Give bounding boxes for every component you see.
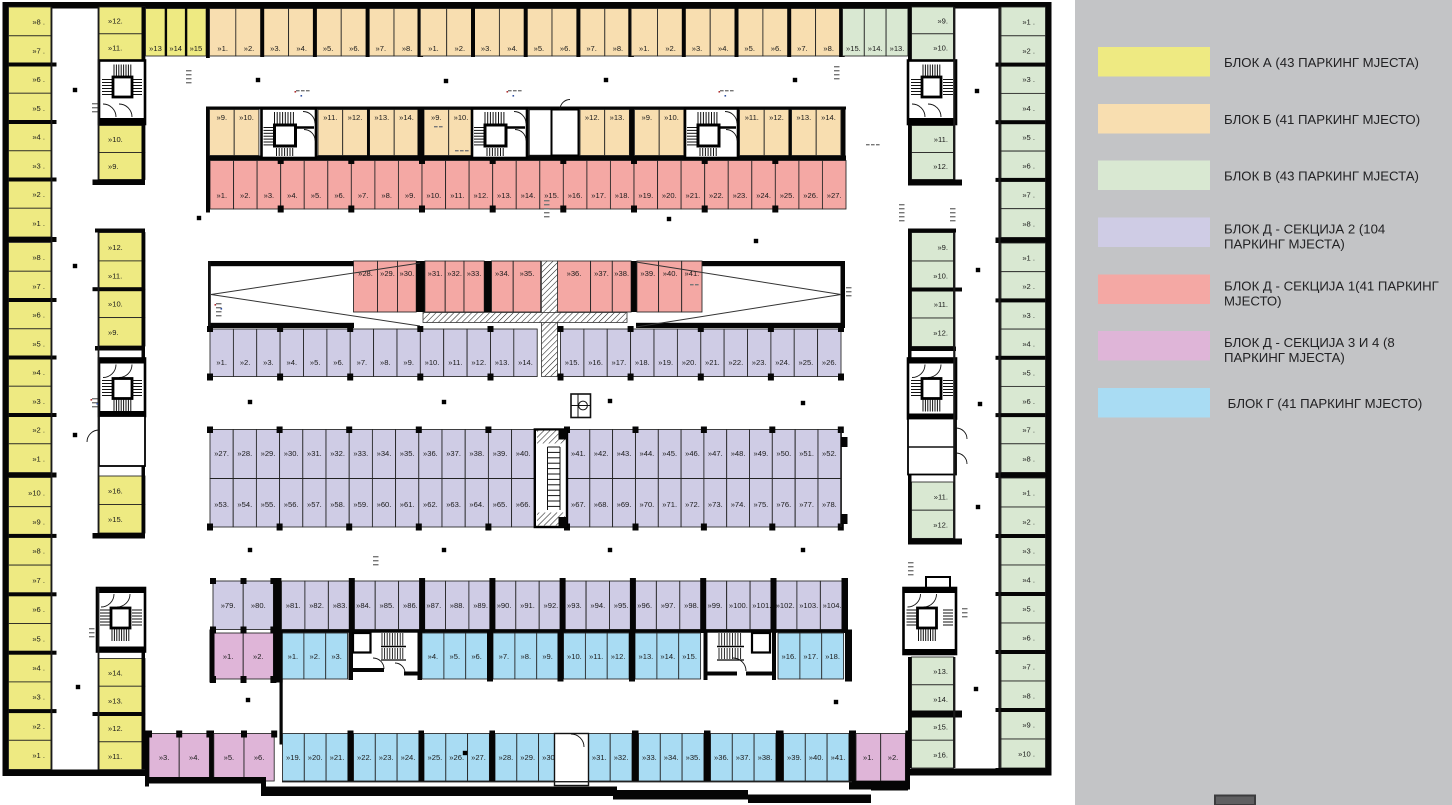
svg-text:»21.: »21. (330, 753, 345, 762)
svg-text:»34.: »34. (377, 449, 392, 458)
svg-text:»15: »15 (190, 44, 203, 53)
svg-text:»6 .: »6 . (32, 75, 45, 84)
svg-text:»43.: »43. (617, 449, 632, 458)
svg-text:»10.: »10. (933, 43, 948, 52)
svg-text:»19.: »19. (638, 191, 653, 200)
svg-text:»11.: »11. (589, 652, 603, 661)
svg-text:»75.: »75. (754, 500, 769, 509)
svg-text:»102.: »102. (776, 601, 795, 610)
svg-text:»13.: »13. (933, 667, 948, 676)
svg-text:»1.: »1. (288, 652, 299, 661)
svg-text:»6 .: »6 . (1022, 634, 1035, 643)
svg-text:»7 .: »7 . (32, 282, 45, 291)
svg-text:БЛОК Д - СЕКЦИЈА 2 (104: БЛОК Д - СЕКЦИЈА 2 (104 (1224, 222, 1385, 237)
svg-text:»3.: »3. (481, 44, 492, 53)
svg-text:»37.: »37. (446, 449, 461, 458)
svg-text:»2.: »2. (240, 358, 251, 367)
svg-text:»17.: »17. (591, 191, 606, 200)
svg-text:»8.: »8. (521, 652, 532, 661)
svg-text:»2 .: »2 . (1022, 282, 1035, 291)
svg-text:БЛОК В (43 ПАРКИНГ МЈЕСТА): БЛОК В (43 ПАРКИНГ МЈЕСТА) (1224, 169, 1419, 184)
svg-text:»5.: »5. (323, 44, 334, 53)
svg-text:»104.: »104. (823, 601, 842, 610)
svg-text:»10 .: »10 . (28, 488, 45, 497)
svg-text:»5 .: »5 . (32, 104, 45, 113)
svg-text:»64.: »64. (469, 500, 484, 509)
svg-text:»6.: »6. (771, 44, 782, 53)
svg-text:»1 .: »1 . (32, 219, 45, 228)
svg-text:»31.: »31. (307, 449, 322, 458)
svg-text:»13.: »13. (796, 113, 811, 122)
svg-text:»2.: »2. (455, 44, 466, 53)
svg-text:»11.: »11. (934, 492, 948, 501)
svg-text:»8.: »8. (613, 44, 624, 53)
svg-text:»15.: »15. (933, 723, 948, 732)
svg-text:»16.: »16. (588, 358, 603, 367)
svg-text:»8 .: »8 . (1022, 454, 1035, 463)
svg-text:»39.: »39. (787, 753, 802, 762)
svg-text:»14.: »14. (518, 358, 533, 367)
svg-text:»3.: »3. (270, 44, 281, 53)
svg-text:»74.: »74. (731, 500, 746, 509)
svg-text:»8 .: »8 . (1022, 219, 1035, 228)
svg-text:»9.: »9. (937, 17, 948, 26)
svg-text:»76.: »76. (776, 500, 791, 509)
svg-text:»92.: »92. (544, 601, 559, 610)
svg-text:»3.: »3. (263, 358, 274, 367)
svg-text:»40.: »40. (663, 269, 678, 278)
svg-text:»14.: »14. (868, 44, 883, 53)
svg-text:»4.: »4. (428, 652, 439, 661)
svg-text:»4 .: »4 . (1022, 340, 1035, 349)
svg-text:»99.: »99. (708, 601, 723, 610)
svg-text:»5.: »5. (310, 358, 321, 367)
svg-text:»16.: »16. (782, 652, 797, 661)
svg-text:»4.: »4. (287, 358, 298, 367)
svg-text:»5 .: »5 . (1022, 605, 1035, 614)
svg-text:»13.: »13. (374, 113, 389, 122)
svg-text:»7 .: »7 . (32, 46, 45, 55)
svg-text:»27.: »27. (471, 753, 486, 762)
svg-text:»1.: »1. (217, 191, 228, 200)
svg-text:»70.: »70. (640, 500, 655, 509)
svg-text:»18.: »18. (635, 358, 650, 367)
svg-text:»97.: »97. (661, 601, 676, 610)
svg-text:»2 .: »2 . (32, 426, 45, 435)
svg-text:»36.: »36. (714, 753, 729, 762)
svg-text:»4 .: »4 . (1022, 104, 1035, 113)
svg-text:»36.: »36. (567, 269, 582, 278)
svg-text:»98.: »98. (684, 601, 699, 610)
svg-text:»16.: »16. (568, 191, 583, 200)
svg-text:»11.: »11. (108, 43, 122, 52)
svg-text:»4.: »4. (287, 191, 298, 200)
svg-text:»10.: »10. (108, 135, 123, 144)
svg-text:»91.: »91. (520, 601, 535, 610)
svg-text:»33.: »33. (353, 449, 368, 458)
svg-text:»32.: »32. (330, 449, 345, 458)
svg-text:»12.: »12. (933, 328, 948, 337)
svg-text:»18.: »18. (825, 652, 840, 661)
svg-text:»63.: »63. (446, 500, 461, 509)
svg-text:»14: »14 (169, 44, 182, 53)
svg-text:»67.: »67. (571, 500, 586, 509)
svg-text:»1.: »1. (223, 652, 234, 661)
svg-text:»3.: »3. (692, 44, 703, 53)
svg-text:»7.: »7. (797, 44, 808, 53)
svg-text:»9.: »9. (542, 652, 553, 661)
svg-text:»47.: »47. (708, 449, 723, 458)
svg-text:»3.: »3. (264, 191, 275, 200)
svg-text:»87.: »87. (426, 601, 441, 610)
svg-text:»24.: »24. (401, 753, 416, 762)
svg-text:»2 .: »2 . (32, 190, 45, 199)
svg-text:»1 .: »1 . (32, 454, 45, 463)
svg-text:»38.: »38. (758, 753, 773, 762)
svg-text:»2.: »2. (888, 753, 899, 762)
svg-text:»8 .: »8 . (32, 547, 45, 556)
svg-text:»9.: »9. (642, 113, 653, 122)
svg-text:»1 .: »1 . (1022, 489, 1035, 498)
svg-text:»50.: »50. (776, 449, 791, 458)
svg-text:»1.: »1. (216, 358, 227, 367)
svg-text:»10.: »10. (933, 271, 948, 280)
svg-text:»14.: »14. (933, 695, 948, 704)
svg-text:»58.: »58. (330, 500, 345, 509)
svg-text:»72.: »72. (685, 500, 700, 509)
svg-text:»10.: »10. (664, 113, 679, 122)
svg-text:»1.: »1. (428, 44, 439, 53)
svg-text:»4.: »4. (718, 44, 729, 53)
svg-text:»40.: »40. (809, 753, 824, 762)
svg-text:»101.: »101. (752, 601, 771, 610)
svg-text:»42.: »42. (594, 449, 609, 458)
svg-text:»14.: »14. (521, 191, 536, 200)
svg-text:»12.: »12. (769, 113, 784, 122)
svg-text:»23.: »23. (733, 191, 748, 200)
svg-text:»78.: »78. (822, 500, 837, 509)
svg-text:»60.: »60. (377, 500, 392, 509)
svg-text:»51.: »51. (799, 449, 814, 458)
svg-text:»5 .: »5 . (1022, 368, 1035, 377)
svg-text:»12.: »12. (585, 113, 600, 122)
svg-text:»10.: »10. (454, 113, 469, 122)
svg-text:»10.: »10. (426, 191, 441, 200)
svg-text:»19.: »19. (658, 358, 673, 367)
svg-text:»1 .: »1 . (32, 751, 45, 760)
svg-text:»11.: »11. (450, 191, 464, 200)
svg-text:»11.: »11. (934, 300, 948, 309)
svg-text:»11.: »11. (108, 752, 122, 761)
svg-text:»11.: »11. (934, 135, 948, 144)
svg-text:»11.: »11. (108, 271, 122, 280)
svg-text:»7.: »7. (376, 44, 387, 53)
svg-text:»3 .: »3 . (32, 693, 45, 702)
svg-text:»28.: »28. (237, 449, 252, 458)
svg-text:»3 .: »3 . (32, 161, 45, 170)
svg-text:»39.: »39. (493, 449, 508, 458)
svg-text:»85.: »85. (380, 601, 395, 610)
svg-text:»56.: »56. (284, 500, 299, 509)
svg-text:»3 .: »3 . (1022, 547, 1035, 556)
svg-text:»5.: »5. (744, 44, 755, 53)
svg-text:»12.: »12. (611, 652, 626, 661)
svg-text:»13.: »13. (639, 652, 654, 661)
svg-text:»13: »13 (149, 44, 162, 53)
svg-text:»8.: »8. (381, 191, 392, 200)
svg-text:»40.: »40. (516, 449, 531, 458)
svg-text:»12.: »12. (933, 521, 948, 530)
svg-text:»38.: »38. (469, 449, 484, 458)
svg-text:»29.: »29. (380, 269, 395, 278)
svg-text:»9.: »9. (937, 243, 948, 252)
svg-text:»38.: »38. (614, 269, 629, 278)
svg-text:»12.: »12. (108, 243, 123, 252)
svg-text:»86.: »86. (403, 601, 418, 610)
svg-text:»88.: »88. (450, 601, 465, 610)
svg-text:»9.: »9. (405, 191, 416, 200)
svg-text:»84.: »84. (356, 601, 371, 610)
svg-text:»22.: »22. (709, 191, 724, 200)
svg-text:»8.: »8. (402, 44, 413, 53)
svg-text:»95.: »95. (614, 601, 629, 610)
svg-text:»10.: »10. (108, 300, 123, 309)
svg-text:»14.: »14. (821, 113, 836, 122)
svg-text:»77.: »77. (799, 500, 814, 509)
svg-text:»2.: »2. (665, 44, 676, 53)
svg-text:»80.: »80. (251, 601, 266, 610)
svg-text:»35.: »35. (400, 449, 415, 458)
svg-text:»11.: »11. (448, 358, 462, 367)
svg-text:»41.: »41. (831, 753, 846, 762)
svg-text:»35.: »35. (520, 269, 535, 278)
svg-text:»13.: »13. (610, 113, 625, 122)
svg-text:»30.: »30. (400, 269, 415, 278)
svg-text:»52.: »52. (822, 449, 837, 458)
svg-text:»37.: »37. (594, 269, 609, 278)
svg-text:»25.: »25. (780, 191, 795, 200)
svg-text:»34.: »34. (664, 753, 679, 762)
svg-text:»10.: »10. (425, 358, 440, 367)
svg-text:»26.: »26. (822, 358, 837, 367)
svg-text:»54.: »54. (237, 500, 252, 509)
svg-text:»1.: »1. (639, 44, 650, 53)
svg-text:»6 .: »6 . (32, 311, 45, 320)
svg-text:»15.: »15. (565, 358, 580, 367)
svg-text:»62.: »62. (423, 500, 438, 509)
svg-text:»21.: »21. (705, 358, 720, 367)
svg-text:»3 .: »3 . (32, 397, 45, 406)
svg-text:»7.: »7. (357, 358, 368, 367)
svg-text:»6.: »6. (560, 44, 571, 53)
svg-text:»19.: »19. (286, 753, 301, 762)
svg-text:»68.: »68. (594, 500, 609, 509)
svg-text:ПАРКИНГ МЈЕСТА): ПАРКИНГ МЈЕСТА) (1224, 237, 1345, 252)
svg-text:»83.: »83. (333, 601, 348, 610)
svg-text:»11.: »11. (323, 113, 337, 122)
svg-text:»32.: »32. (447, 269, 462, 278)
svg-text:»69.: »69. (617, 500, 632, 509)
svg-text:»14.: »14. (399, 113, 414, 122)
svg-text:»17.: »17. (803, 652, 818, 661)
svg-text:»24.: »24. (775, 358, 790, 367)
svg-text:»1 .: »1 . (1022, 254, 1035, 263)
svg-text:»73.: »73. (708, 500, 723, 509)
svg-text:»4 .: »4 . (32, 133, 45, 142)
svg-text:»1.: »1. (863, 753, 874, 762)
svg-text:»4.: »4. (296, 44, 307, 53)
svg-text:»34.: »34. (495, 269, 510, 278)
svg-text:БЛОК Д - СЕКЦИЈА 3 И 4 (8: БЛОК Д - СЕКЦИЈА 3 И 4 (8 (1224, 335, 1395, 350)
svg-text:БЛОК Г (41 ПАРКИНГ МЈЕСТО): БЛОК Г (41 ПАРКИНГ МЈЕСТО) (1224, 396, 1422, 411)
svg-text:»7 .: »7 . (1022, 426, 1035, 435)
svg-text:»49.: »49. (754, 449, 769, 458)
svg-text:»46.: »46. (685, 449, 700, 458)
svg-text:»55.: »55. (261, 500, 276, 509)
svg-text:»6 .: »6 . (32, 605, 45, 614)
svg-text:»9.: »9. (217, 113, 228, 122)
svg-text:»8.: »8. (823, 44, 834, 53)
svg-text:»10 .: »10 . (1018, 750, 1035, 759)
svg-text:»8.: »8. (380, 358, 391, 367)
svg-text:»12.: »12. (108, 17, 123, 26)
svg-text:»12.: »12. (474, 191, 489, 200)
svg-text:»10.: »10. (239, 113, 254, 122)
svg-text:»27.: »27. (214, 449, 229, 458)
svg-text:»103.: »103. (799, 601, 818, 610)
svg-text:»13.: »13. (497, 191, 512, 200)
svg-text:»4 .: »4 . (32, 368, 45, 377)
svg-text:»6.: »6. (254, 753, 265, 762)
svg-text:»79.: »79. (221, 601, 236, 610)
svg-text:»5 .: »5 . (32, 634, 45, 643)
svg-text:»13.: »13. (495, 358, 510, 367)
svg-text:»1 .: »1 . (1022, 18, 1035, 27)
svg-text:»2 .: »2 . (1022, 518, 1035, 527)
svg-text:»13.: »13. (890, 44, 905, 53)
svg-text:»20.: »20. (308, 753, 323, 762)
svg-text:»1.: »1. (217, 44, 228, 53)
svg-text:»6.: »6. (349, 44, 360, 53)
svg-text:»81.: »81. (286, 601, 301, 610)
svg-text:»22.: »22. (357, 753, 372, 762)
svg-text:»7 .: »7 . (32, 576, 45, 585)
svg-text:»14.: »14. (108, 669, 123, 678)
svg-text:»31.: »31. (428, 269, 443, 278)
svg-text:»15.: »15. (682, 652, 697, 661)
svg-text:»15.: »15. (846, 44, 861, 53)
svg-text:ПАРКИНГ МЈЕСТА): ПАРКИНГ МЈЕСТА) (1224, 350, 1345, 365)
svg-text:»6 .: »6 . (1022, 397, 1035, 406)
svg-text:»25.: »25. (428, 753, 443, 762)
svg-text:»2 .: »2 . (1022, 46, 1035, 55)
svg-text:»7.: »7. (586, 44, 597, 53)
svg-text:»15.: »15. (108, 515, 123, 524)
svg-text:»3 .: »3 . (1022, 75, 1035, 84)
svg-text:»6 .: »6 . (1022, 162, 1035, 171)
svg-text:»13.: »13. (108, 696, 123, 705)
svg-text:»9.: »9. (108, 162, 119, 171)
svg-text:»9.: »9. (108, 328, 119, 337)
svg-text:»90.: »90. (497, 601, 512, 610)
svg-text:»82.: »82. (309, 601, 324, 610)
svg-text:»6.: »6. (333, 358, 344, 367)
svg-text:»4.: »4. (189, 753, 200, 762)
svg-text:»2.: »2. (310, 652, 321, 661)
svg-text:»7.: »7. (358, 191, 369, 200)
svg-text:»4 .: »4 . (1022, 576, 1035, 585)
svg-text:»9.: »9. (431, 113, 442, 122)
svg-text:»18.: »18. (615, 191, 630, 200)
svg-text:»12.: »12. (108, 724, 123, 733)
svg-text:»96.: »96. (637, 601, 652, 610)
svg-text:»3.: »3. (159, 753, 170, 762)
svg-text:»15.: »15. (544, 191, 559, 200)
svg-text:»3 .: »3 . (1022, 311, 1035, 320)
svg-text:»4 .: »4 . (32, 664, 45, 673)
svg-text:»6.: »6. (471, 652, 482, 661)
svg-text:»9 .: »9 . (32, 518, 45, 527)
svg-text:»65.: »65. (493, 500, 508, 509)
svg-text:»5 .: »5 . (1022, 133, 1035, 142)
svg-text:»20.: »20. (682, 358, 697, 367)
svg-text:»16.: »16. (933, 750, 948, 759)
svg-text:»2.: »2. (244, 44, 255, 53)
svg-text:»14.: »14. (660, 652, 675, 661)
svg-text:»61.: »61. (400, 500, 415, 509)
svg-text:»48.: »48. (731, 449, 746, 458)
svg-text:»11.: »11. (745, 113, 759, 122)
svg-text:»71.: »71. (662, 500, 677, 509)
svg-text:МЈЕСТО): МЈЕСТО) (1224, 294, 1282, 309)
svg-text:»27.: »27. (827, 191, 842, 200)
svg-text:»44.: »44. (640, 449, 655, 458)
svg-text:»29.: »29. (261, 449, 276, 458)
svg-text:»32.: »32. (614, 753, 629, 762)
svg-text:»12.: »12. (471, 358, 486, 367)
svg-text:»28.: »28. (499, 753, 514, 762)
svg-text:»2.: »2. (240, 191, 251, 200)
svg-text:»31.: »31. (592, 753, 607, 762)
svg-text:»5.: »5. (534, 44, 545, 53)
svg-text:»57.: »57. (307, 500, 322, 509)
svg-text:»93.: »93. (567, 601, 582, 610)
svg-text:»39.: »39. (640, 269, 655, 278)
svg-text:»26.: »26. (449, 753, 464, 762)
svg-text:»59.: »59. (353, 500, 368, 509)
svg-text:»36.: »36. (423, 449, 438, 458)
svg-text:»20.: »20. (662, 191, 677, 200)
svg-text:»7 .: »7 . (1022, 663, 1035, 672)
svg-text:»53.: »53. (214, 500, 229, 509)
svg-text:БЛОК Б (41 ПАРКИНГ МЈЕСТО): БЛОК Б (41 ПАРКИНГ МЈЕСТО) (1224, 112, 1420, 127)
svg-text:»2 .: »2 . (32, 722, 45, 731)
svg-text:»5 .: »5 . (32, 339, 45, 348)
svg-text:»3.: »3. (331, 652, 342, 661)
svg-text:»17.: »17. (612, 358, 627, 367)
svg-text:»24.: »24. (756, 191, 771, 200)
svg-text:»8 .: »8 . (1022, 692, 1035, 701)
svg-text:»5.: »5. (311, 191, 322, 200)
svg-text:»89.: »89. (473, 601, 488, 610)
svg-text:»37.: »37. (736, 753, 751, 762)
svg-text:»10.: »10. (567, 652, 582, 661)
svg-text:»12.: »12. (933, 162, 948, 171)
svg-text:»12.: »12. (348, 113, 363, 122)
svg-text:»23.: »23. (752, 358, 767, 367)
svg-text:»7 .: »7 . (1022, 191, 1035, 200)
svg-text:»33.: »33. (467, 269, 482, 278)
